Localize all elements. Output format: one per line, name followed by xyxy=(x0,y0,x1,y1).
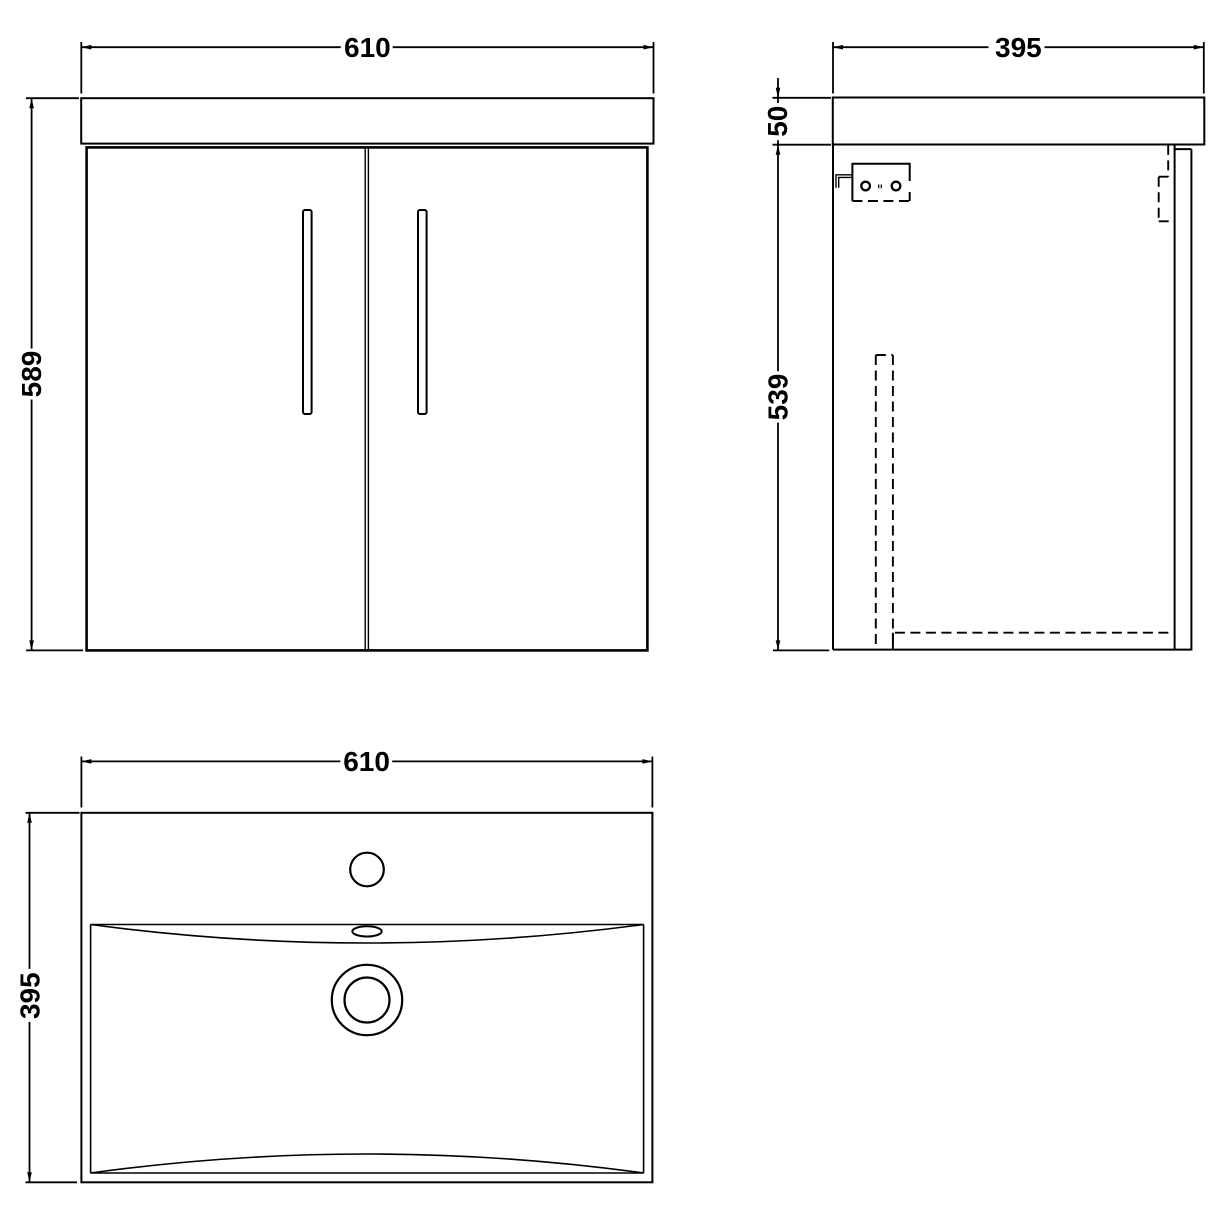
svg-text:395: 395 xyxy=(995,32,1042,63)
svg-text:610: 610 xyxy=(343,746,390,777)
svg-text:395: 395 xyxy=(15,972,46,1019)
svg-text:50: 50 xyxy=(762,106,793,137)
svg-text:610: 610 xyxy=(344,32,391,63)
svg-text:589: 589 xyxy=(16,351,47,398)
svg-text:539: 539 xyxy=(763,374,794,421)
